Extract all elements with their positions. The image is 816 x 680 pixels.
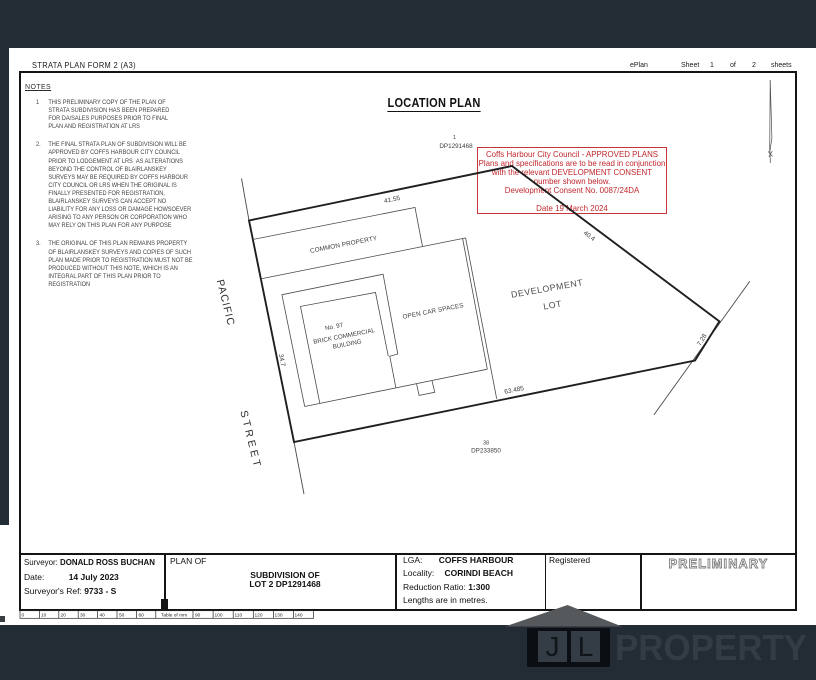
svg-text:100: 100 [215,613,223,619]
svg-text:90: 90 [195,613,201,619]
svg-text:0: 0 [22,613,25,619]
svg-text:120: 120 [255,613,263,619]
svg-text:Table of mm: Table of mm [161,613,187,619]
svg-text:20: 20 [61,613,67,619]
svg-text:110: 110 [235,613,243,619]
svg-text:130: 130 [275,613,283,619]
svg-text:30: 30 [80,613,86,619]
svg-text:50: 50 [119,613,125,619]
svg-text:140: 140 [295,613,303,619]
svg-text:60: 60 [139,613,145,619]
svg-text:10: 10 [41,613,47,619]
svg-text:40: 40 [100,613,106,619]
